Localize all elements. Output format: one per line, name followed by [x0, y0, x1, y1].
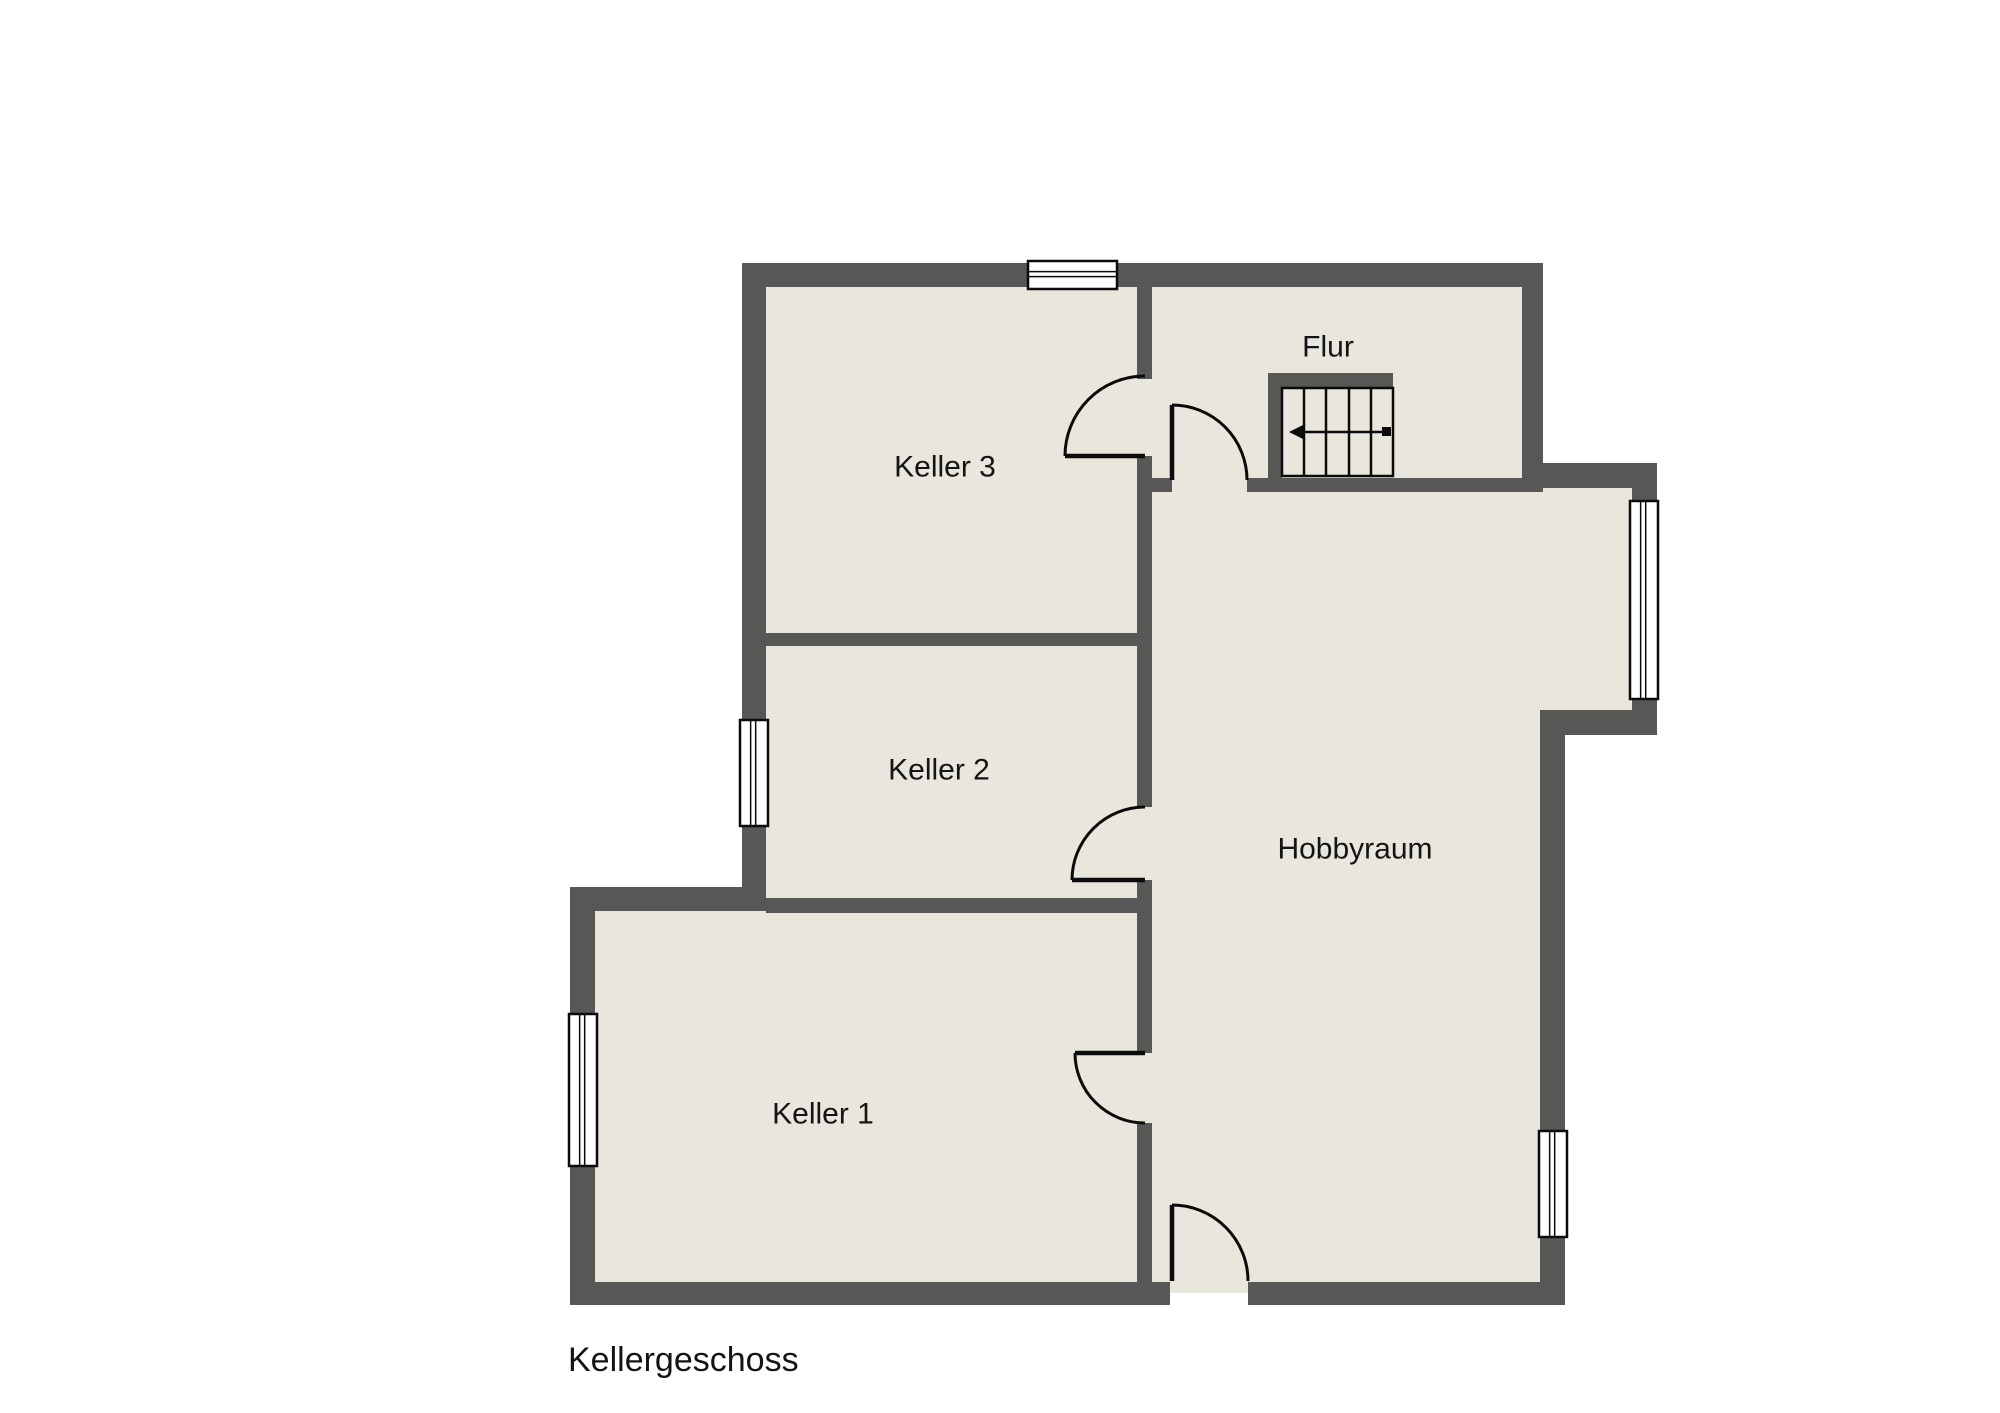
wall-segment: [742, 263, 1543, 287]
window-symbol: [1028, 261, 1117, 289]
wall-segment: [1137, 1123, 1152, 1282]
wall-segment: [1522, 263, 1543, 492]
wall-segment: [1543, 463, 1657, 488]
room-label-keller3: Keller 3: [894, 451, 996, 484]
room-label-hobbyraum: Hobbyraum: [1277, 833, 1432, 866]
room-label-keller2: Keller 2: [888, 754, 990, 787]
wall-segment: [1137, 287, 1152, 379]
wall-segment: [766, 633, 1137, 646]
stairs-arrow-start-marker: [1382, 427, 1391, 436]
wall-segment: [570, 887, 766, 911]
window-symbol: [1630, 501, 1658, 699]
floor-area: [754, 484, 1145, 905]
wall-segment: [1248, 1282, 1565, 1305]
wall-segment: [1268, 373, 1282, 478]
window-symbol: [1539, 1131, 1567, 1237]
floor-plan-svg: Keller 3FlurKeller 2HobbyraumKeller 1Kel…: [0, 0, 2000, 1413]
floor-area: [583, 899, 1145, 1293]
room-label-flur: Flur: [1302, 331, 1354, 364]
wall-segment: [1247, 478, 1522, 492]
wall-segment: [1137, 478, 1172, 492]
floor-plan: Keller 3FlurKeller 2HobbyraumKeller 1Kel…: [0, 0, 2000, 1413]
wall-segment: [1137, 456, 1152, 807]
floor-area: [1532, 475, 1644, 722]
room-label-keller1: Keller 1: [772, 1098, 874, 1131]
wall-segment: [766, 898, 1137, 913]
floor-area: [1145, 484, 1552, 1293]
plan-title: Kellergeschoss: [568, 1341, 799, 1379]
wall-segment: [570, 1282, 1170, 1305]
wall-segment: [1137, 880, 1152, 1053]
window-symbol: [569, 1014, 597, 1166]
wall-segment: [1268, 373, 1393, 388]
window-symbol: [740, 720, 768, 826]
